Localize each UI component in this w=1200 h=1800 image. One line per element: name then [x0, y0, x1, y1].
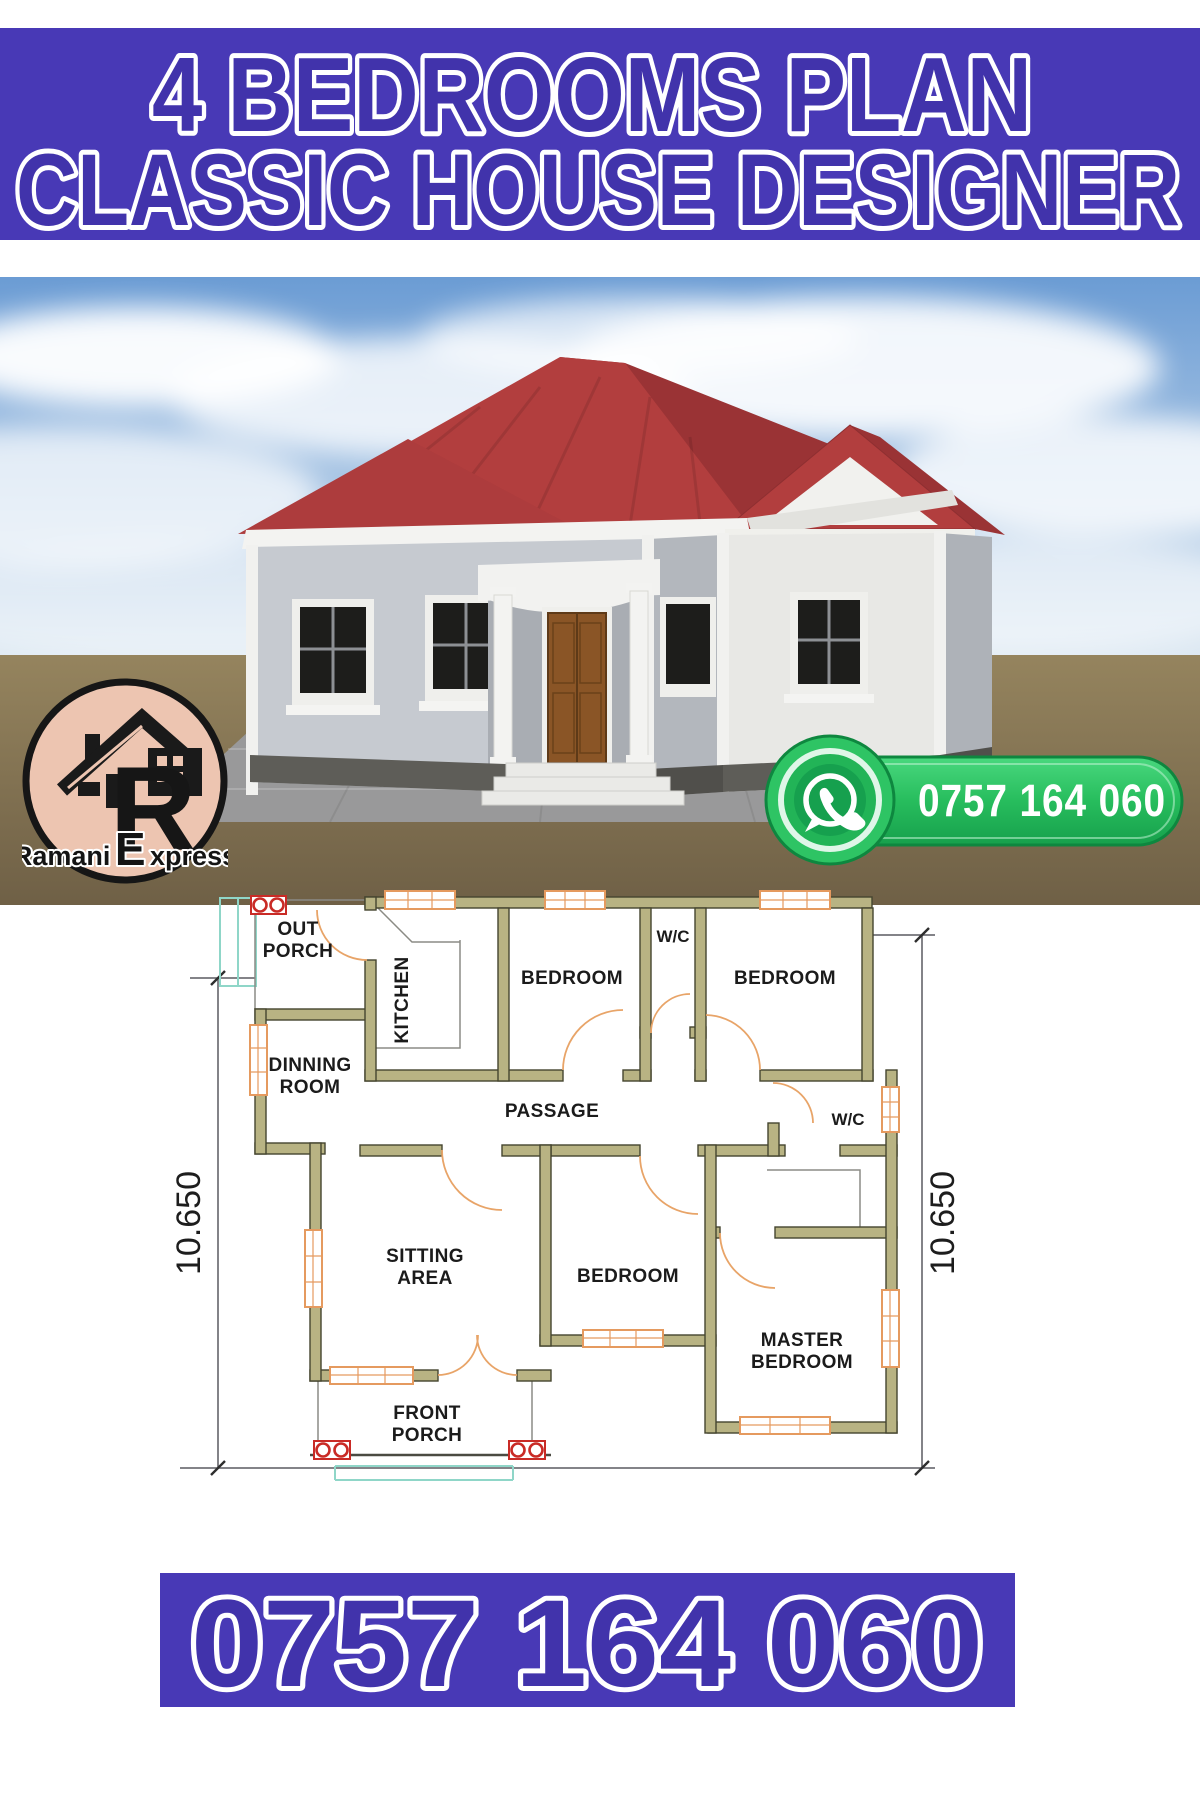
brand-logo: R Ramani E xpress [22, 678, 228, 884]
room-label-out-porch: OUTPORCH [263, 919, 334, 962]
room-label-wc-right: W/C [831, 1110, 864, 1129]
logo-brand-start: Ramani [22, 841, 110, 871]
logo-brand-initial: E [115, 823, 146, 875]
porch-column [490, 587, 516, 769]
room-label-front-porch: FRONTPORCH [392, 1403, 463, 1446]
window [660, 597, 716, 697]
room-label-master-bedroom: MASTERBEDROOM [751, 1330, 853, 1373]
room-label-passage: PASSAGE [505, 1101, 599, 1122]
room-label-bedroom-top-left: BEDROOM [521, 968, 623, 989]
room-label-bedroom-top-right: BEDROOM [734, 968, 836, 989]
header-title-line2: CLASSIC HOUSE DESIGNER [16, 133, 1180, 240]
header-banner: 4 BEDROOMS PLAN CLASSIC HOUSE DESIGNER [0, 28, 1200, 240]
logo-brand-end: xpress [150, 841, 228, 871]
floor-plan: 10.650 10.650 [160, 878, 980, 1578]
room-label-dinning-room: DINNINGROOM [268, 1055, 351, 1098]
whatsapp-icon [766, 736, 894, 864]
whatsapp-phone-number: 0757 164 060 [918, 775, 1166, 826]
footer-phone-number: 0757 164 060 [191, 1575, 983, 1707]
front-steps [482, 763, 684, 805]
room-label-kitchen: KITCHEN [392, 956, 413, 1043]
window [286, 599, 380, 715]
whatsapp-contact-badge[interactable]: 0757 164 060 [750, 733, 1190, 868]
porch-column [626, 583, 652, 767]
room-label-bedroom-bottom: BEDROOM [577, 1266, 679, 1287]
footer-phone-banner: 0757 164 060 [160, 1573, 1015, 1707]
room-label-sitting-area: SITTINGAREA [386, 1246, 464, 1289]
dimension-label-left: 10.650 [170, 1171, 208, 1275]
dimension-label-right: 10.650 [924, 1171, 962, 1275]
front-door [548, 613, 606, 763]
poster: 4 BEDROOMS PLAN CLASSIC HOUSE DESIGNER [0, 0, 1200, 1800]
room-label-wc-top: W/C [656, 927, 689, 946]
window [784, 592, 874, 703]
